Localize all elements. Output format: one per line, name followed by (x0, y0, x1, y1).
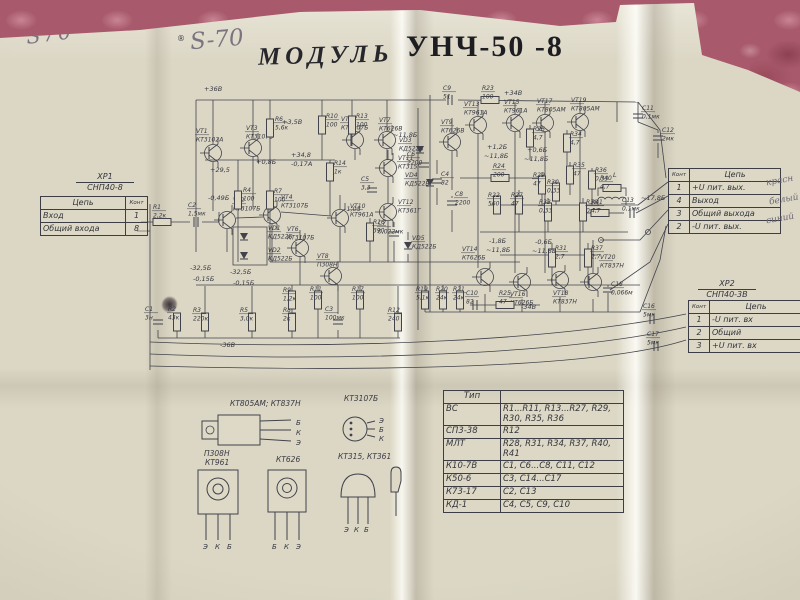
connector-table-xp1: ЦепьКонтВход1Общий входа8 (40, 196, 148, 236)
table-cell: Вход (41, 210, 126, 223)
voltage-label: +0,6Б (527, 146, 548, 154)
voltage-label: -36В (220, 341, 236, 349)
transistor-symbol: VT13КТ961А (463, 101, 487, 140)
resistor-symbol: R23100 (481, 85, 499, 104)
pinout-label: Э (202, 543, 208, 551)
resistor-symbol: R141к (327, 160, 348, 181)
capacitor-symbol: С482 (432, 171, 454, 187)
table-row: 3+U пит. вх (689, 340, 800, 353)
capacitor-symbol: С1082 (465, 290, 479, 310)
component-value: П308Н (317, 262, 338, 269)
to92-body (343, 417, 367, 441)
table-cell: С4, С5, С9, С10 (501, 500, 624, 513)
table-cell (501, 391, 624, 404)
resistor-symbol: R12,2к (152, 204, 171, 226)
voltage-label: ~11,8Б (484, 152, 509, 160)
diode-symbol: VD5КД522Б (404, 235, 437, 251)
voltage-label: ~11,8Б (532, 247, 557, 255)
voltage-label: -32,5Б (230, 268, 252, 276)
component-designator: R7 (274, 188, 282, 195)
component-value: 4,7 (570, 140, 580, 147)
component-designator: VT6 (287, 226, 299, 233)
resistor-symbol: R24200 (491, 163, 509, 182)
component-value: 4,7 (533, 135, 543, 142)
photo-of-schematic: S70 ® S-70 МОДУЛЬ УНЧ-50 -8 VT1КТ3102АVT… (0, 0, 800, 600)
table-cell: КД-1 (444, 500, 501, 513)
voltage-label: +36В (204, 85, 223, 93)
component-designator: R21 (453, 286, 465, 293)
table-cell: +U пит. вх (710, 340, 800, 353)
component-designator: С18 (611, 281, 623, 288)
component-value: 3,3 (361, 185, 371, 192)
component-value: 4,7 (600, 184, 610, 191)
capacitor-symbol: С180,066м (603, 281, 633, 297)
component-designator: R29 (533, 172, 545, 179)
table-cell: Тип (444, 391, 501, 404)
component-value: 2,7 (591, 254, 601, 261)
component-value: КТ805АМ (571, 106, 600, 113)
to220-tab (202, 421, 218, 439)
table-row: СП3-38R12 (444, 426, 624, 439)
table-cell: Общий входа (41, 223, 126, 236)
table-cell: Конт (126, 197, 148, 210)
component-value: 43к (168, 315, 180, 322)
pinout-label: Э (295, 439, 301, 447)
voltage-label: -0,6Б (535, 238, 553, 246)
component-designator: С16 (643, 303, 655, 310)
component-value: 0,1мк (642, 114, 660, 121)
voltage-label: +29,5 (210, 166, 230, 174)
table-cell: 2 (669, 221, 690, 234)
table-cell: -U пит. вх (710, 314, 800, 327)
table-cell: 3 (689, 340, 710, 353)
to220-body (218, 415, 260, 445)
pinout-label: КТ805АМ; КТ837Н (230, 399, 301, 408)
pinout-label: Б (379, 426, 384, 434)
component-types-table: ТипВСR1...R11, R13...R27, R29, R30, R35,… (443, 390, 624, 513)
component-designator: R30 (547, 179, 559, 186)
component-designator: R9 (283, 287, 291, 294)
component-designator: R13 (356, 113, 368, 120)
component-value: 5мк (643, 312, 655, 319)
component-value: 100мк (325, 315, 345, 322)
table-cell: 2 (689, 327, 710, 340)
component-designator: R25 (499, 290, 511, 297)
component-designator: VT9 (441, 119, 453, 126)
resistor-symbol: R10100 (319, 113, 340, 134)
table-cell: 3 (669, 208, 690, 221)
voltage-label: -0,15Б (233, 279, 255, 287)
table-row: К50-6С3, С14...С17 (444, 474, 624, 487)
component-value: КТ361Г (398, 208, 421, 215)
voltage-label: -0,49Б (208, 194, 230, 202)
component-designator: R36 (595, 167, 607, 174)
component-designator: VD2 (268, 247, 281, 254)
component-value: 100 (356, 122, 368, 129)
kt626-body (268, 470, 306, 512)
component-designator: С13 (622, 197, 634, 204)
component-value: 560 (488, 201, 500, 208)
pinout-label: Э (343, 526, 349, 534)
resistor-symbol: R300,33 (546, 179, 561, 201)
component-value: 0,022мк (378, 229, 404, 236)
table-row: КД-1С4, С5, С9, С10 (444, 500, 624, 513)
table-cell: К10-7В (444, 461, 501, 474)
voltage-label: +34,8 (291, 151, 311, 159)
component-designator: R26 (533, 126, 545, 133)
component-designator: R33 (539, 199, 551, 206)
component-value: 240 (388, 316, 400, 323)
component-value: 100 (482, 94, 494, 101)
table-cell: С3, С14...С17 (501, 474, 624, 487)
connector-xp2-title: ХР2 СНП40-3В (698, 279, 756, 299)
voltage-label: -1,05 (344, 205, 361, 213)
resistor-symbol: R17100 (351, 286, 365, 309)
component-designator: R23 (482, 85, 494, 92)
connector-table-output: КонтЦепь1+U пит. вых.4Выход3Общий выхода… (668, 168, 781, 234)
component-value: 200 (493, 172, 505, 179)
table-cell: МЛТ (444, 439, 501, 461)
resistor-symbol: R53,0к (239, 307, 256, 331)
table-cell: С1, С6...С8, С11, С12 (501, 461, 624, 474)
resistor-symbol: R195,1к (415, 286, 430, 309)
voltage-label: -34В (521, 303, 537, 311)
capacitor-symbol: С82200 (447, 191, 470, 207)
xp2-type: СНП40-3В (706, 290, 747, 299)
component-value: КТ626Б (462, 255, 486, 262)
component-value: 2,2к (153, 213, 167, 220)
resistor-symbol: R91,2к (282, 287, 297, 309)
component-value: 2к (283, 316, 291, 323)
table-row: ВСR1...R11, R13...R27, R29, R30, R35, R3… (444, 404, 624, 426)
table-cell: 1 (126, 210, 148, 223)
pinout-label: К (215, 543, 221, 551)
component-value: 0,1мк (622, 206, 640, 213)
component-designator: R41 (591, 199, 603, 206)
component-designator: С8 (455, 191, 463, 198)
component-value: КТ837Н (553, 299, 577, 306)
voltage-label: -1,8Б (489, 237, 507, 245)
table-row: Общий входа8 (41, 223, 148, 236)
table-row: 3Общий выхода (669, 208, 781, 221)
component-value: 51 (443, 94, 451, 101)
component-value: 220к (193, 316, 208, 323)
component-designator: VT18 (553, 290, 569, 297)
pinout-label: Б (296, 419, 301, 427)
component-designator: VT13 (464, 101, 480, 108)
voltage-label: L (613, 171, 617, 179)
component-designator: VD1 (268, 225, 281, 232)
component-value: КТ961А (504, 108, 527, 115)
component-designator: VD5 (412, 235, 425, 242)
component-designator: R31 (555, 245, 567, 252)
pinout-label: П308Н (204, 449, 230, 458)
capacitor-symbol: С13н (144, 306, 163, 324)
voltage-label: +34В (504, 89, 523, 97)
component-value: КТ805АМ (537, 107, 566, 114)
component-value: 24к (436, 295, 448, 302)
capacitor-symbol: С110,1мк (633, 105, 660, 121)
voltage-label: +1,2Б (487, 143, 508, 151)
component-value: 3,0к (240, 316, 254, 323)
table-row: Тип (444, 391, 624, 404)
schematic-drawing: VT1КТ3102АVT2КТ3107БVT3КТ3107БVT4КТ3107Б… (0, 0, 800, 600)
component-value: 100 (274, 197, 286, 204)
table-cell: Общий (710, 327, 800, 340)
component-designator: VT15 (504, 99, 520, 106)
resistor-symbol: R2747 (510, 192, 524, 214)
component-value: КТ961А (464, 110, 487, 117)
table-cell: 1 (689, 314, 710, 327)
component-designator: С10 (466, 290, 478, 297)
component-designator: С3 (325, 306, 333, 313)
voltage-label: ~11,8Б (486, 246, 511, 254)
component-value: КД522Б (399, 146, 424, 153)
table-cell: Цепь (710, 301, 800, 314)
voltage-label: -32,5Б (190, 264, 212, 272)
table-row: МЛТR28, R31, R34, R37, R40, R41 (444, 439, 624, 461)
component-designator: VT20 (600, 254, 616, 261)
wire (281, 212, 331, 216)
voltage-label: ~11,8Б (524, 155, 549, 163)
component-value: 82 (466, 299, 474, 306)
pinout-label: КТ3107Б (344, 394, 378, 403)
pinout-label: Э (295, 543, 301, 551)
component-value: 0,33 (539, 208, 553, 215)
table-cell: R12 (501, 426, 624, 439)
kt961-body (198, 470, 238, 514)
component-designator: С4 (441, 171, 449, 178)
pinout-label: Б (364, 526, 369, 534)
resistor-symbol: R330,33 (538, 199, 553, 221)
component-value: 2мк (662, 136, 674, 143)
table-cell: 1 (669, 182, 690, 195)
kt315-body (341, 474, 375, 497)
component-designator: VT19 (571, 97, 587, 104)
resistor-symbol: R2124к (452, 286, 466, 309)
component-value: 4,7 (591, 208, 601, 215)
component-designator: R22 (488, 192, 500, 199)
component-designator: R11 (310, 286, 322, 293)
table-cell: Цепь (41, 197, 126, 210)
xp1-type: СНП40-8 (87, 183, 123, 192)
component-designator: R4 (243, 187, 251, 194)
component-value: 2200 (455, 200, 470, 207)
capacitor-symbol: С70,022мк (377, 220, 404, 236)
component-designator: С9 (443, 85, 451, 92)
capacitor-symbol: С53,3 (360, 176, 377, 192)
table-cell: 4 (669, 195, 690, 208)
component-designator: С17 (647, 331, 659, 338)
schematic-components: VT1КТ3102АVT2КТ3107БVT3КТ3107БVT4КТ3107Б… (144, 85, 675, 351)
component-designator: R40 (600, 175, 612, 182)
diode-symbol: VD3КД522Б (398, 137, 424, 153)
resistor-symbol: R11100 (309, 286, 323, 309)
pinout-label: К (354, 526, 360, 534)
resistor-symbol: R414,7 (590, 199, 609, 217)
component-designator: С2 (188, 202, 196, 209)
component-value: КТ3107Б (281, 203, 308, 210)
wire (236, 217, 263, 218)
component-value: КТ837Н (600, 263, 624, 270)
table-cell: К50-6 (444, 474, 501, 487)
component-designator: VT7 (379, 117, 391, 124)
voltage-label: ~17,8Б (641, 194, 666, 202)
kt315-side-view (391, 467, 401, 492)
component-value: 0,33 (547, 188, 561, 195)
component-designator: VT3 (246, 125, 258, 132)
pinout-label: К (284, 543, 290, 551)
transistor-symbol: VT1КТ3102А (195, 128, 223, 168)
voltage-label: +0,8Б (256, 158, 277, 166)
component-value: 1к (334, 169, 342, 176)
resistor-symbol: R22560 (487, 192, 501, 214)
resistor-symbol: R264,7 (527, 126, 547, 147)
component-value: 5,1к (416, 295, 430, 302)
component-value: 1,5мк (188, 211, 206, 218)
transistor-symbol: VT16КТ626Б (509, 267, 534, 307)
connector-xp1-title: ХР1 СНП40-8 (76, 172, 134, 192)
xp2-designator: ХР2 (698, 279, 756, 290)
table-cell: R28, R31, R34, R37, R40, R41 (501, 439, 624, 461)
component-value: 47 (533, 181, 541, 188)
component-value: 100 (243, 196, 255, 203)
table-row: Вход1 (41, 210, 148, 223)
component-value: КТ3102А (196, 137, 223, 144)
resistor-symbol: R3220к (192, 307, 209, 331)
component-value: 5мк (647, 340, 659, 347)
xp1-designator: ХР1 (76, 172, 134, 183)
table-row: К10-7ВС1, С6...С8, С11, С12 (444, 461, 624, 474)
voltage-label: ~11,8Б (393, 131, 418, 139)
connector-table-xp2: КонтЦепь1-U пит. вх2Общий3+U пит. вх (688, 300, 800, 353)
component-designator: R37 (591, 245, 603, 252)
capacitor-symbol: С21,5мк (187, 202, 206, 227)
resistor-symbol: R2947 (532, 172, 546, 194)
table-row: 2-U пит. вых. (669, 221, 781, 234)
table-cell: Конт (669, 169, 690, 182)
component-value: 47 (499, 299, 507, 306)
voltage-label: +3,5В (282, 118, 303, 126)
resistor-symbol: R12240 (387, 307, 402, 331)
table-row: К73-17С2, С13 (444, 487, 624, 500)
component-designator: С7 (378, 220, 386, 227)
component-designator: VT17 (537, 98, 553, 105)
component-designator: VT12 (398, 199, 414, 206)
component-value: 100 (326, 122, 338, 129)
table-row: 2Общий (689, 327, 800, 340)
component-designator: VD4 (405, 172, 418, 179)
component-value: 2,7 (555, 254, 565, 261)
diode-symbol: VD4КД522Б (404, 172, 434, 188)
wire (640, 226, 666, 312)
table-cell: Конт (689, 301, 710, 314)
component-value: КД522Б (268, 256, 293, 263)
pinout-label: К (379, 435, 385, 443)
component-value: 24к (453, 295, 465, 302)
resistor-symbol: R404,7 (599, 175, 621, 192)
component-designator: R14 (334, 160, 346, 167)
component-designator: R20 (436, 286, 448, 293)
resistor-symbol: R2024к (435, 286, 449, 309)
table-row: 4Выход (669, 195, 781, 208)
component-designator: R1 (153, 204, 161, 211)
component-designator: R24 (493, 163, 505, 170)
component-designator: R2 (168, 306, 176, 313)
component-value: КД522Б (412, 244, 437, 251)
component-value: КД522Б (405, 181, 430, 188)
resistor-symbol: R3547 (567, 162, 587, 184)
component-designator: VT8 (317, 253, 329, 260)
table-cell: К73-17 (444, 487, 501, 500)
component-designator: R17 (352, 286, 364, 293)
component-value: 1,2к (283, 296, 297, 303)
component-value: 2200 (407, 160, 422, 167)
component-designator: С5 (361, 176, 369, 183)
pinout-label: Б (227, 543, 232, 551)
table-row: КонтЦепь (669, 169, 781, 182)
table-cell: СП3-38 (444, 426, 501, 439)
component-designator: R35 (573, 162, 585, 169)
component-designator: R5 (240, 307, 248, 314)
capacitor-symbol: С951 (442, 85, 456, 105)
component-value: 3н (145, 315, 153, 322)
pinout-label: К (296, 429, 302, 437)
table-row: ЦепьКонт (41, 197, 148, 210)
component-designator: R12 (388, 307, 400, 314)
table-cell: С2, С13 (501, 487, 624, 500)
component-designator: R19 (416, 286, 428, 293)
table-row: 1+U пит. вых. (669, 182, 781, 195)
component-designator: С11 (642, 105, 654, 112)
pinout-label: КТ961 (205, 458, 229, 467)
component-value: 100 (352, 295, 364, 302)
component-value: 47 (573, 171, 581, 178)
component-value: 0,066м (611, 290, 633, 297)
table-cell: 8 (126, 223, 148, 236)
pinout-label: КТ315, КТ361 (338, 452, 391, 461)
diode-symbol: VD2КД522Б (240, 247, 293, 263)
component-designator: VT14 (462, 246, 478, 253)
capacitor-symbol: С3100мк (324, 306, 345, 324)
component-designator: R3 (193, 307, 201, 314)
resistor-symbol: R243к (167, 306, 181, 331)
table-cell: R1...R11, R13...R27, R29, R30, R35, R36 (501, 404, 624, 426)
paper-sheet: S70 ® S-70 МОДУЛЬ УНЧ-50 -8 VT1КТ3102АVT… (0, 0, 800, 600)
component-designator: VT16 (510, 291, 526, 298)
table-row: КонтЦепь (689, 301, 800, 314)
resistor-symbol: R82к (282, 307, 296, 331)
pinout-label: КТ626 (276, 455, 300, 464)
component-designator: R34 (570, 131, 582, 138)
component-designator: R10 (326, 113, 338, 120)
pinout-label: Э (378, 417, 384, 425)
table-row: 1-U пит. вх (689, 314, 800, 327)
pinout-label: Б (272, 543, 277, 551)
component-designator: С12 (662, 127, 674, 134)
voltage-label: -0,15Б (193, 275, 215, 283)
component-value: 47 (511, 201, 519, 208)
capacitor-symbol: С130,1мк (621, 197, 640, 218)
voltage-label: -0,17А (291, 160, 312, 168)
component-value: КД522Б (268, 234, 293, 241)
component-value: КТ626В (441, 128, 465, 135)
component-designator: VT1 (196, 128, 208, 135)
table-cell: ВС (444, 404, 501, 426)
component-designator: С1 (145, 306, 153, 313)
component-value: 100 (310, 295, 322, 302)
component-designator: R27 (511, 192, 523, 199)
